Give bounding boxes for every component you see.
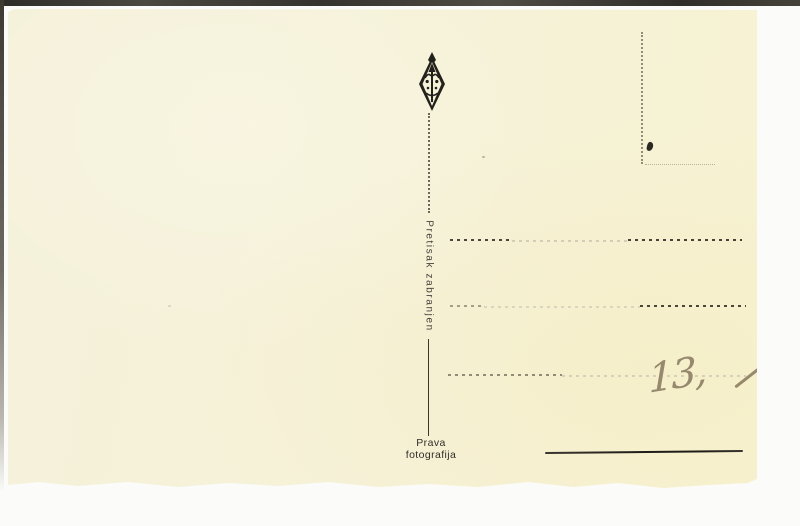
address-line-2 bbox=[640, 305, 746, 307]
scanned-postcard-back: Pretisak zabranjen Prava fotografija 13, bbox=[0, 0, 800, 526]
address-line-2 bbox=[484, 306, 640, 308]
paper-speck bbox=[168, 305, 171, 307]
scanner-edge-left bbox=[0, 0, 4, 492]
address-line-1 bbox=[628, 239, 742, 241]
divider-solid-line bbox=[428, 339, 429, 436]
handwritten-price: 13, bbox=[648, 347, 706, 402]
paper-speck bbox=[482, 156, 485, 158]
handwritten-slash-stroke bbox=[734, 356, 773, 388]
postcard: Pretisak zabranjen Prava fotografija 13, bbox=[8, 9, 757, 488]
sender-line bbox=[545, 450, 743, 454]
stamp-box-left-edge bbox=[641, 32, 643, 164]
stamp-box-bottom-edge bbox=[645, 164, 715, 165]
publisher-monogram-icon bbox=[415, 51, 449, 118]
photo-note-line2: fotografija bbox=[406, 449, 457, 461]
scanner-edge-top bbox=[0, 0, 800, 6]
address-line-3 bbox=[448, 374, 562, 376]
photo-note-line1: Prava bbox=[416, 437, 445, 449]
address-line-1 bbox=[512, 240, 628, 242]
divider-dotted-line bbox=[428, 113, 430, 213]
ink-blot bbox=[646, 141, 654, 151]
address-line-1 bbox=[450, 239, 512, 241]
address-line-2 bbox=[450, 305, 484, 307]
reprint-notice-text: Pretisak zabranjen bbox=[424, 220, 435, 332]
